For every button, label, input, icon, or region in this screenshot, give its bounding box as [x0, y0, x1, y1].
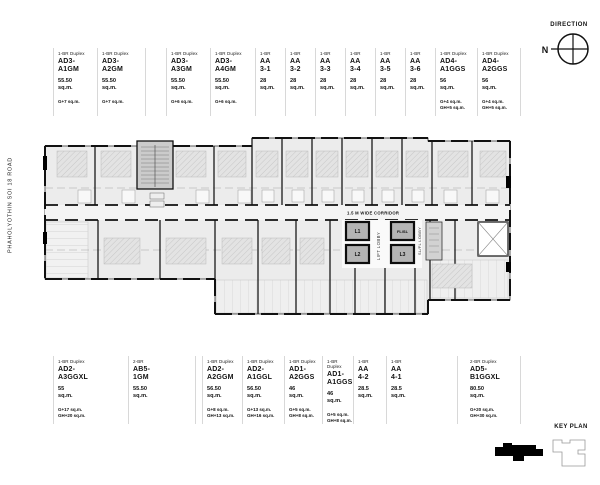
separator — [195, 356, 196, 424]
unit-label: 1-BR Duplex AD1- A2GGS 46 sq.m. G+5 sq.m… — [284, 356, 322, 424]
fire-lift-label: FL/SL — [397, 229, 409, 234]
unit-label: 1-BR Duplex AD1- A1GGS 46 sq.m. G+5 sq.m… — [322, 356, 353, 424]
lift-1-label: L1 — [355, 229, 361, 235]
unit-label: 1-BR Duplex AD3- A1GM 55.50 sq.m. G+7 sq… — [53, 48, 97, 116]
unit-label: 1-BR Duplex AD2- A2GGM 56.50 sq.m. G+8 s… — [202, 356, 242, 424]
unit-label: 1-BR Duplex AD3- A4GM 55.50 sq.m. G+6 sq… — [210, 48, 255, 116]
north-label: N — [542, 45, 549, 55]
service-lobby-label: SL/FL LOBBY — [417, 227, 422, 255]
unit-label: 1-BR AA 4-1 28.5 sq.m. — [386, 356, 457, 424]
lift-3-label: L3 — [400, 252, 406, 258]
service-riser — [426, 222, 442, 260]
separator — [145, 48, 146, 116]
unit-label: 1-BR Duplex AD4- A1GGS 56 sq.m. G+4 sq.m… — [435, 48, 477, 116]
unit-label: 1-BR AA 3-2 28 sq.m. — [285, 48, 315, 116]
unit-label: 1-BR AA 3-4 28 sq.m. — [345, 48, 375, 116]
lift-2-label: L2 — [355, 252, 361, 258]
unit-label: 1-BR AA 3-6 28 sq.m. — [405, 48, 435, 116]
key-plan-label: KEY PLAN — [554, 424, 587, 430]
terrace-bottom — [216, 280, 427, 313]
lift-lobby: L1 L2 FL/SL L3 LIFT LOBBY SL/FL LOBBY — [342, 220, 422, 268]
unit-label: 1-BR AA 3-1 28 sq.m. — [255, 48, 285, 116]
key-plan: KEY PLAN — [488, 414, 600, 480]
unit-label: 1-BR AA 3-3 28 sq.m. — [315, 48, 345, 116]
corridor — [45, 205, 510, 220]
unit-label: 1-BR AA 4-2 28.5 sq.m. — [353, 356, 386, 424]
right-core — [478, 222, 508, 256]
unit-label: 1-BR Duplex AD3- A2GM 55.50 sq.m. G+7 sq… — [97, 48, 145, 116]
key-plan-other-building — [553, 440, 585, 466]
key-plan-current-building — [495, 443, 543, 461]
unit-label: 1-BR Duplex AD4- A2GGS 56 sq.m. G+4 sq.m… — [477, 48, 520, 116]
direction-compass: DIRECTION N — [528, 12, 600, 70]
floor-plan-sheet: PHAHOLYOTHIN SOI 18 ROAD 1-BR Duplex AD3… — [0, 0, 600, 485]
corridor-label: 1.5 M WIDE CORRIDOR — [347, 211, 399, 216]
separator — [520, 48, 521, 116]
compass-icon — [551, 34, 588, 64]
unit-label: 1-BR Duplex AD2- A1GGL 56.50 sq.m. G+13 … — [242, 356, 284, 424]
lift-lobby-label: LIFT LOBBY — [376, 232, 381, 260]
unit-label: 1-BR AA 3-5 28 sq.m. — [375, 48, 405, 116]
floor-plan-drawing: L1 L2 FL/SL L3 LIFT LOBBY SL/FL LOBBY 1.… — [36, 132, 516, 322]
unit-label: 1-BR Duplex AD2- A3GGXL 55 sq.m. G+17 sq… — [53, 356, 128, 424]
road-label: PHAHOLYOTHIN SOI 18 ROAD — [8, 148, 14, 263]
direction-label: DIRECTION — [550, 22, 588, 28]
unit-label: 1-BR Duplex AD3- A3GM 55.50 sq.m. G+6 sq… — [166, 48, 210, 116]
top-unit-labels: 1-BR Duplex AD3- A1GM 55.50 sq.m. G+7 sq… — [0, 48, 600, 116]
unit-label: 2-BR AB5- 1GM 55.50 sq.m. — [128, 356, 195, 424]
